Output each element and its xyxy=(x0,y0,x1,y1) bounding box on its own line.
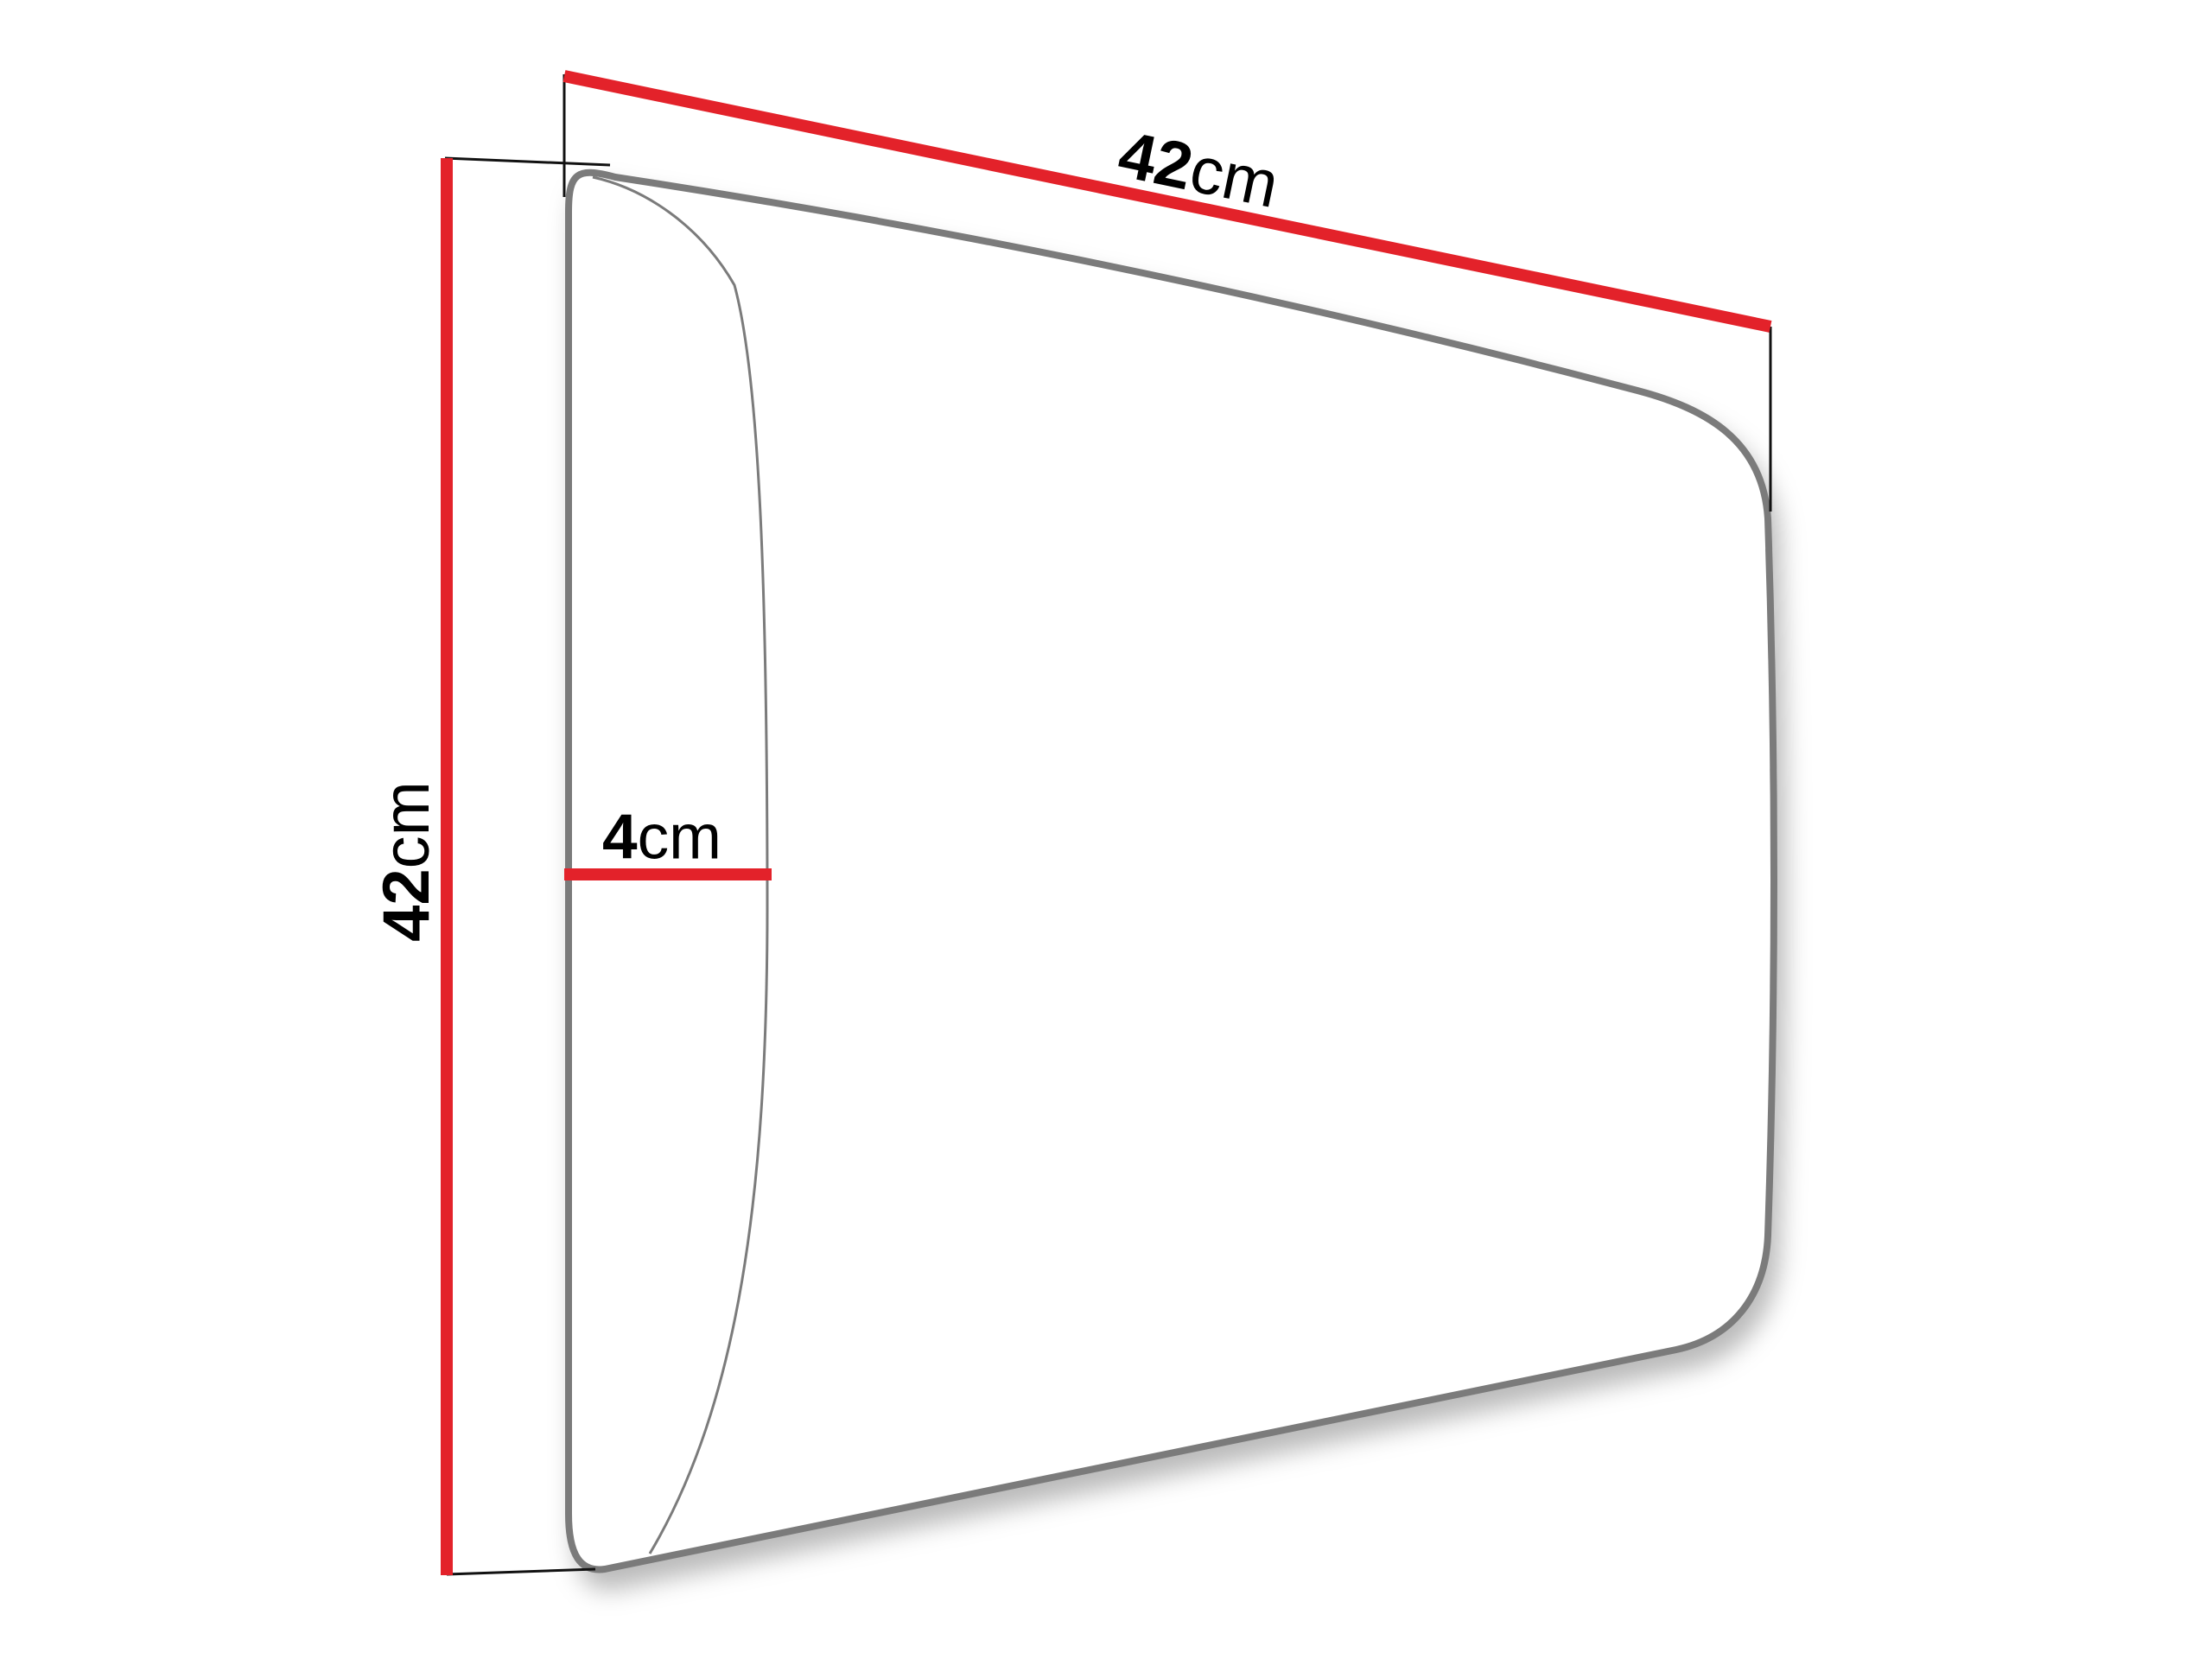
extension-line-bottom-left-horizontal xyxy=(447,1569,595,1574)
panel-drawing xyxy=(0,0,2212,1659)
panel-dimension-diagram: 42 cm 42 cm 4 cm xyxy=(0,0,2212,1659)
extension-line-top-left-horizontal xyxy=(445,158,610,165)
thickness-unit: cm xyxy=(638,806,721,869)
height-dimension-label: 42 cm xyxy=(374,781,440,942)
height-unit: cm xyxy=(374,781,440,868)
thickness-dimension-label: 4 cm xyxy=(602,806,721,869)
thickness-value: 4 xyxy=(602,806,638,869)
width-value: 42 xyxy=(1113,122,1198,201)
width-unit: cm xyxy=(1185,137,1284,219)
height-value: 42 xyxy=(374,868,440,942)
